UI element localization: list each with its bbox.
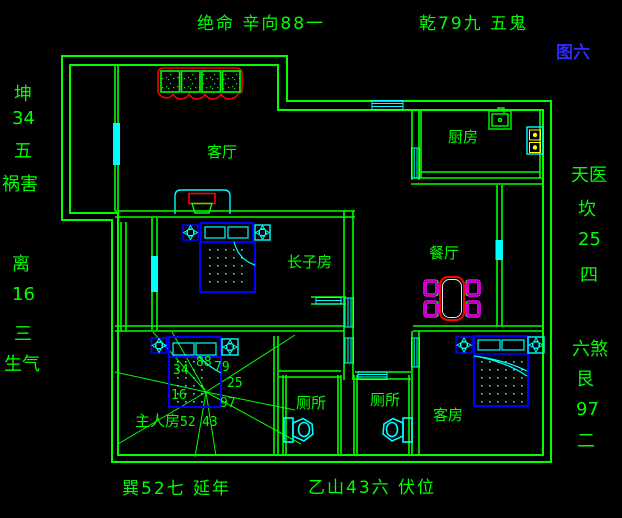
guest-bed — [474, 336, 528, 406]
label-shengqi: 生气 — [4, 355, 40, 375]
compass-number-nw: 34 — [173, 364, 189, 378]
dining-side-door — [496, 240, 504, 260]
room-label-master: 主人房 — [135, 413, 180, 430]
label-liusha: 六煞 — [572, 340, 608, 360]
label-top-left-annotation: 绝命 辛向88一 — [197, 15, 325, 34]
master-lamp-left — [152, 338, 167, 353]
bay-window — [316, 298, 341, 305]
toilet-left-fixture — [284, 418, 313, 442]
label-kan-rank: 四 — [580, 266, 598, 286]
guest-lamp-right — [528, 337, 544, 353]
compass-number-s: 43 — [202, 416, 218, 430]
balcony-door — [113, 123, 120, 165]
compass-number-e: 25 — [227, 377, 243, 391]
label-gen: 艮 — [576, 370, 594, 390]
son-room-door — [151, 256, 158, 292]
windows — [316, 101, 420, 380]
dining-chairs — [424, 280, 480, 317]
master-lamp-right — [222, 339, 238, 355]
room-label-kitchen: 厨房 — [448, 129, 478, 146]
room-label-eldest-son: 长子房 — [287, 254, 332, 271]
label-top-right-annotation: 乾79九 五鬼 — [419, 15, 528, 34]
compass-number-ne: 79 — [214, 361, 230, 375]
stove — [527, 127, 543, 154]
label-li: 离 — [12, 255, 30, 275]
sofa — [158, 68, 242, 99]
label-bottom-right-annotation: 乙山43六 伏位 — [308, 479, 436, 498]
room-label-living: 客厅 — [207, 144, 237, 161]
label-gen-number: 97 — [576, 400, 599, 420]
label-kun-rank: 五 — [14, 142, 32, 162]
label-kun-number: 34 — [12, 109, 35, 129]
label-huohai: 祸害 — [2, 175, 38, 195]
compass-number-w: 16 — [171, 389, 187, 403]
dining-set — [424, 277, 480, 320]
label-li-rank: 三 — [14, 325, 32, 345]
label-li-number: 16 — [12, 285, 35, 305]
label-kan-number: 25 — [578, 230, 601, 250]
room-label-toilet-right: 厕所 — [370, 392, 400, 409]
room-label-toilet-left: 厕所 — [296, 395, 326, 412]
toilet-right-fixture — [383, 418, 412, 442]
room-label-guest: 客房 — [433, 407, 463, 424]
son-lamp-right — [255, 225, 270, 240]
kitchen-sink — [489, 108, 511, 129]
label-figure-number: 图六 — [556, 44, 590, 63]
label-kun: 坤 — [14, 85, 32, 105]
floorplan-page: 绝命 辛向88一 乾79九 五鬼 图六 坤 34 五 祸害 离 16 三 生气 … — [0, 0, 622, 518]
compass-number-n: 88 — [196, 356, 212, 370]
compass-number-sw: 52 — [180, 416, 196, 430]
guest-lamp-left — [456, 337, 472, 353]
label-kan: 坎 — [578, 200, 596, 220]
compass-number-se: 97 — [220, 397, 236, 411]
label-bottom-left-annotation: 巽52七 延年 — [122, 480, 231, 499]
label-tianyi: 天医 — [571, 166, 607, 186]
room-label-dining: 餐厅 — [429, 245, 459, 262]
son-bed — [200, 223, 255, 292]
label-gen-rank: 二 — [577, 432, 595, 452]
son-lamp-left — [183, 225, 198, 240]
